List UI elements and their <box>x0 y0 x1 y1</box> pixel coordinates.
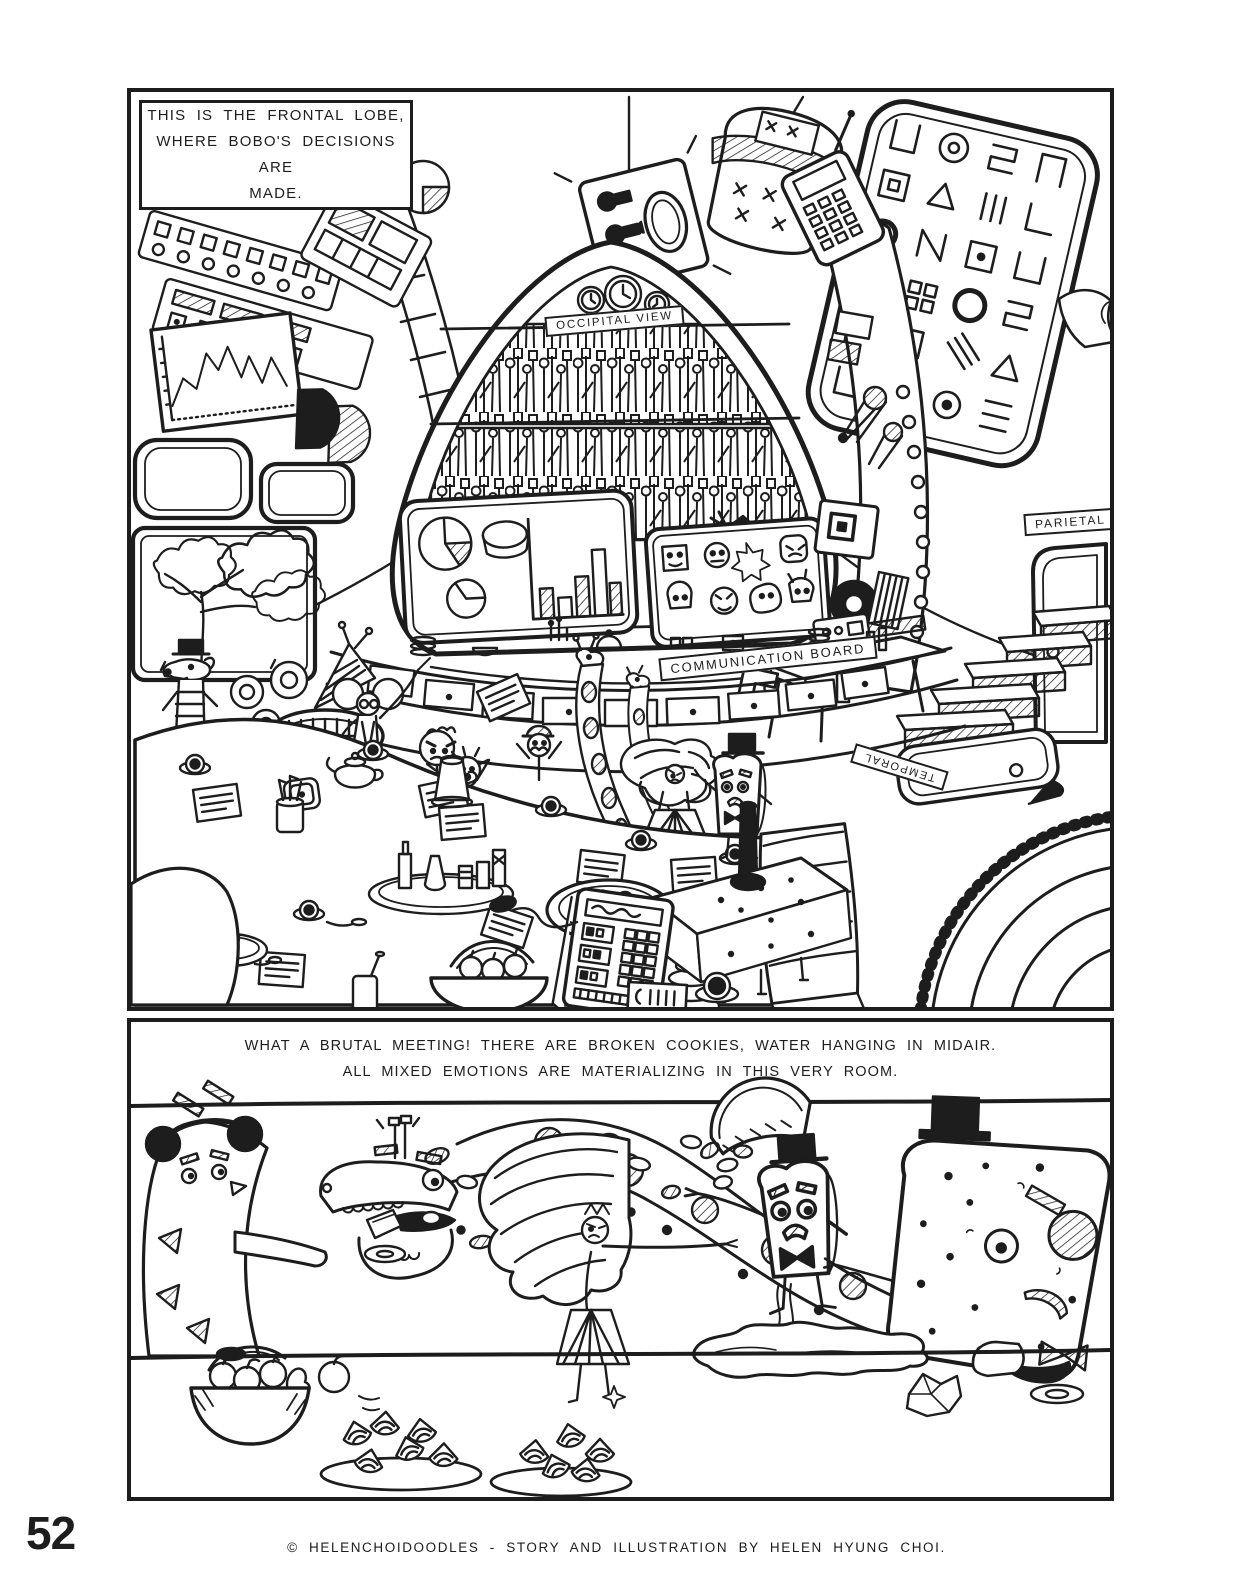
meeting-artwork <box>131 1022 1110 1497</box>
credit-line: © HELENCHOIDOODLES - STORY AND ILLUSTRAT… <box>127 1540 1106 1555</box>
caption-line-2: WHERE BOBO'S DECISIONS ARE <box>142 129 410 182</box>
bunny-character <box>143 1081 326 1360</box>
croissant-plate <box>321 1410 481 1490</box>
chart-screen <box>399 490 638 644</box>
panel2-caption-line-1: WHAT A BRUTAL MEETING! THERE ARE BROKEN … <box>131 1033 1110 1059</box>
crumpled-paper <box>907 1374 961 1416</box>
panel2-caption: WHAT A BRUTAL MEETING! THERE ARE BROKEN … <box>131 1033 1110 1085</box>
blank-screens <box>135 440 353 522</box>
panel2-caption-line-2: ALL MIXED EMOTIONS ARE MATERIALIZING IN … <box>131 1059 1110 1085</box>
line-chart-screen <box>151 313 302 431</box>
toast-character-2 <box>681 1133 851 1319</box>
tree-window <box>133 528 325 680</box>
fruit-bowl-2 <box>191 1347 310 1444</box>
girl-character <box>480 1134 737 1408</box>
comic-page: THIS IS THE FRONTAL LOBE, WHERE BOBO'S D… <box>0 0 1250 1594</box>
page-number: 52 <box>26 1506 75 1560</box>
dd-glyph <box>289 386 376 468</box>
curled-paper <box>1059 290 1110 347</box>
panel-frontal-lobe: THIS IS THE FRONTAL LOBE, WHERE BOBO'S D… <box>127 88 1114 1011</box>
frontal-lobe-artwork <box>131 92 1110 1007</box>
cap-mustache-character <box>517 726 561 780</box>
caption-line-1: THIS IS THE FRONTAL LOBE, <box>142 103 410 129</box>
tally-box <box>628 982 687 1007</box>
foreground-shape <box>131 868 238 1005</box>
faces-screen <box>645 518 831 648</box>
croissant-plate-2 <box>491 1422 631 1496</box>
flying-apple <box>319 1356 379 1410</box>
caption-line-3: MADE. <box>142 181 410 207</box>
caption-box: THIS IS THE FRONTAL LOBE, WHERE BOBO'S D… <box>139 100 413 210</box>
panel-meeting: WHAT A BRUTAL MEETING! THERE ARE BROKEN … <box>127 1018 1114 1501</box>
spiral-rug <box>919 815 1110 1007</box>
speaker-box <box>815 500 879 559</box>
